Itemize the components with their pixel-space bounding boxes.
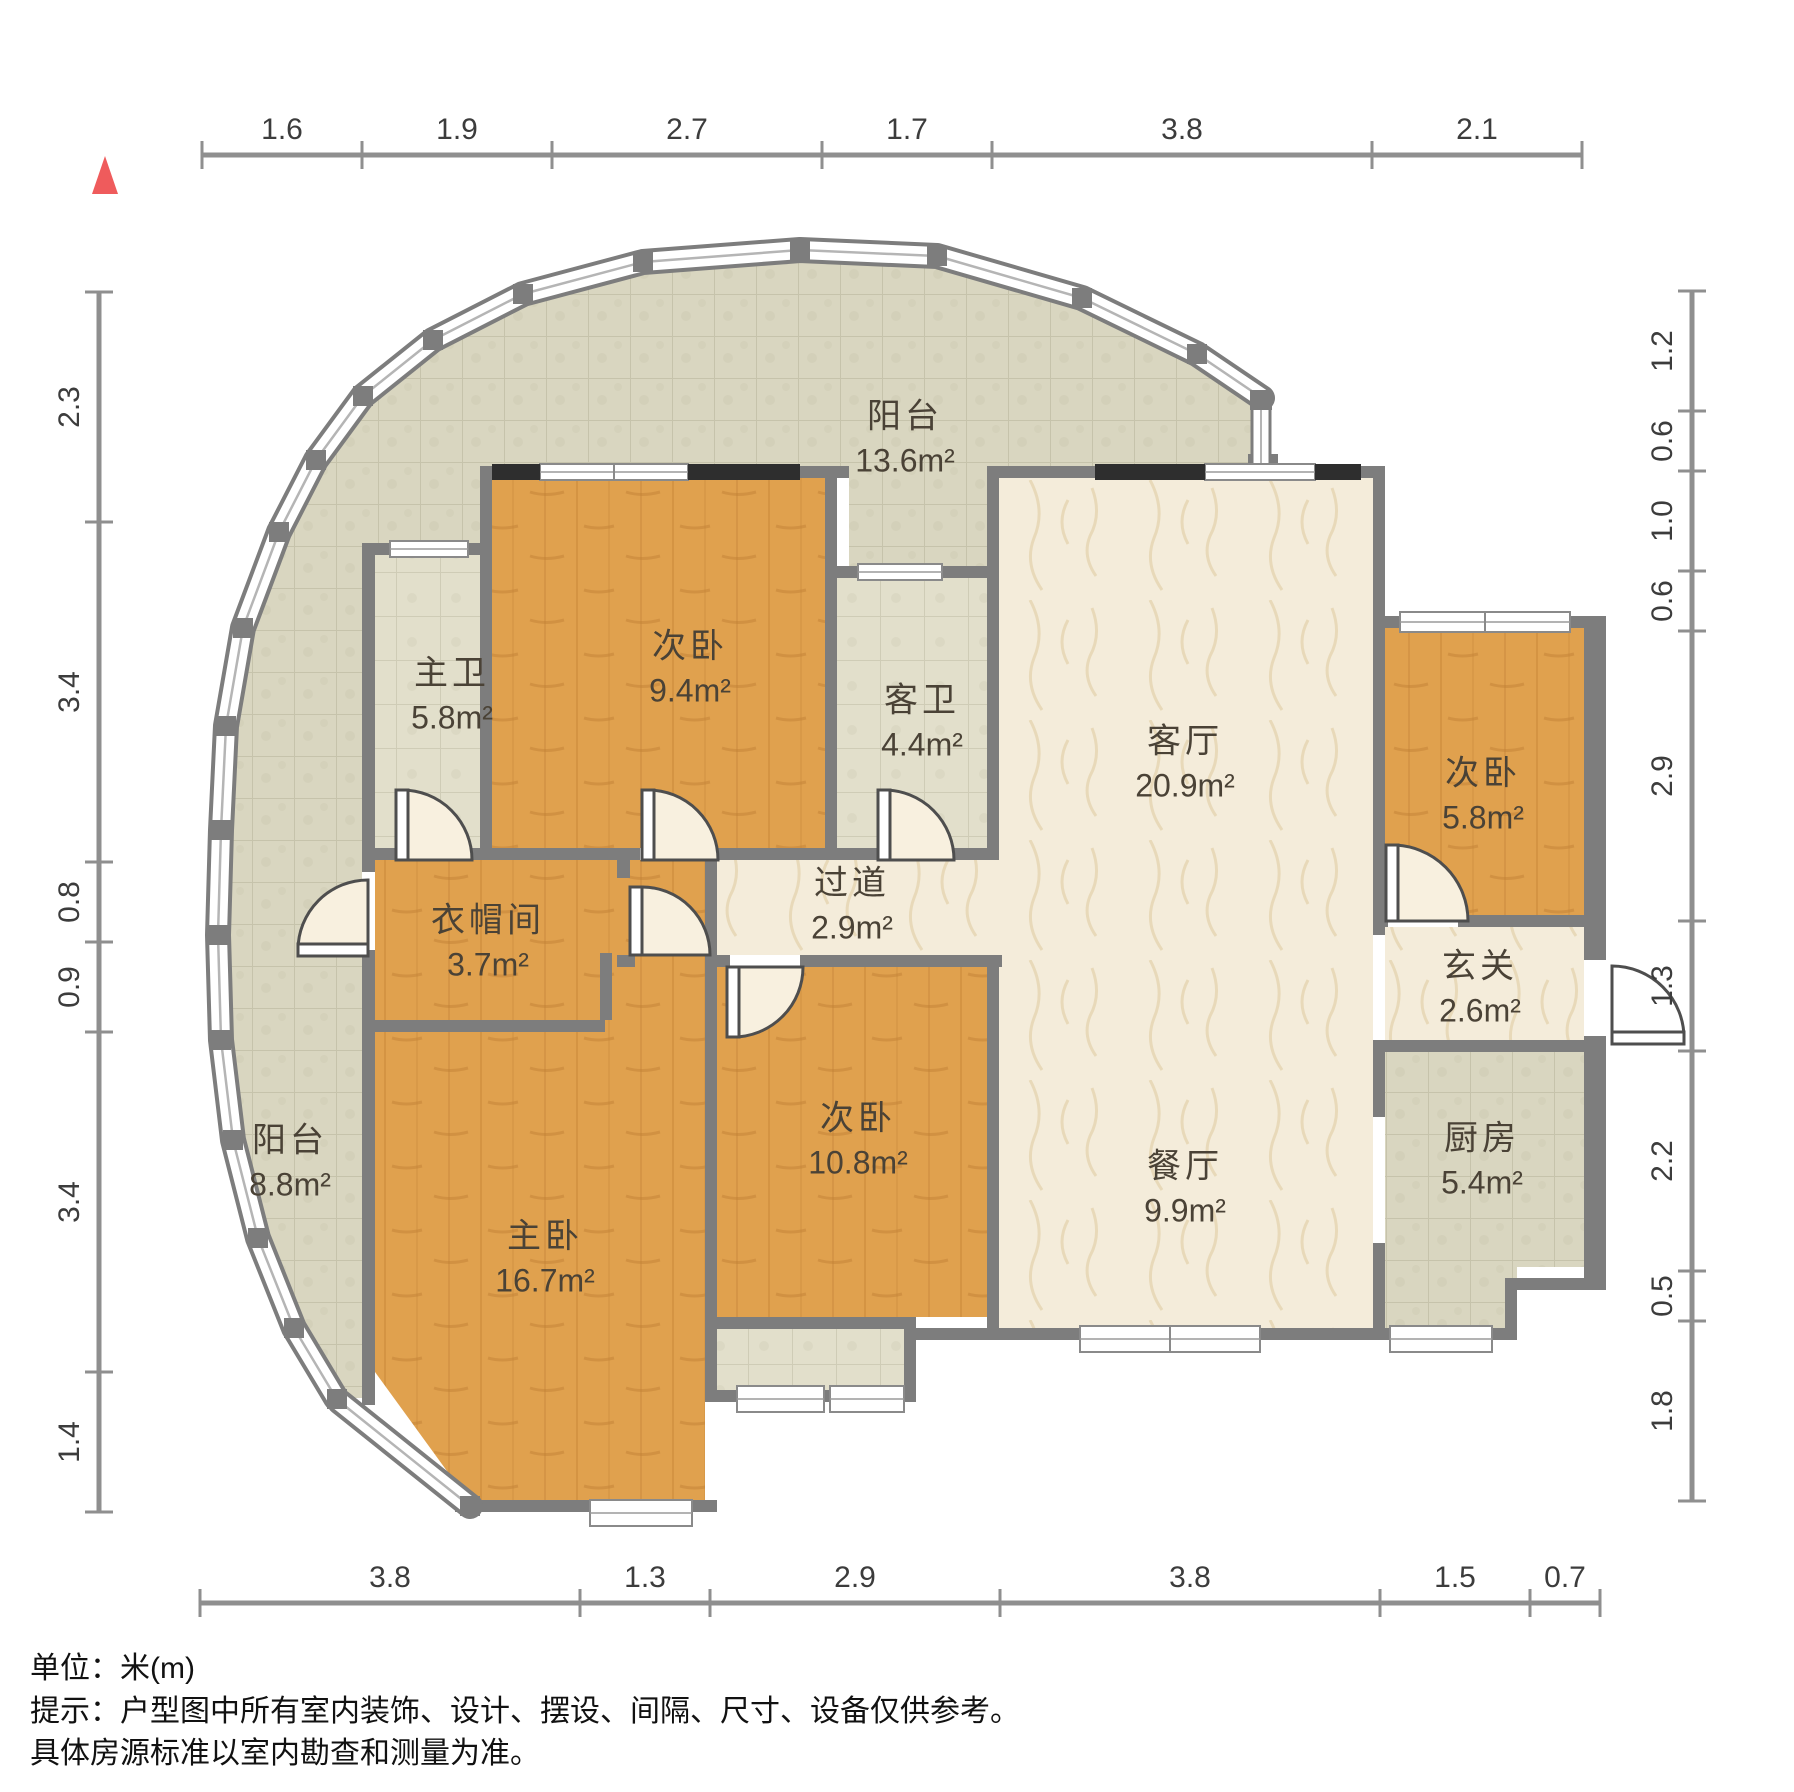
floorplan-page: 1.61.92.71.73.82.13.81.32.93.81.50.72.33… [0,0,1794,1792]
floor-living-dining [999,478,1373,1328]
footer-unit-note: 单位：米(m) [30,1648,1020,1691]
dim-label-right-0: 1.2 [1646,330,1679,372]
dim-label-top-4: 3.8 [1161,113,1203,146]
dim-label-bottom-4: 1.5 [1434,1561,1476,1594]
dim-label-bottom-2: 2.9 [834,1561,876,1594]
dim-label-top-0: 1.6 [261,113,303,146]
dim-label-left-4: 3.4 [53,1181,86,1223]
footer-disclaimer-1: 提示：户型图中所有室内装饰、设计、摆设、间隔、尺寸、设备仅供参考。 [30,1691,1020,1734]
dim-label-bottom-0: 3.8 [369,1561,411,1594]
dim-label-left-0: 2.3 [53,386,86,428]
dim-label-top-5: 2.1 [1456,113,1498,146]
dim-label-left-3: 0.9 [53,966,86,1008]
dim-label-left-5: 1.4 [53,1421,86,1463]
dim-label-left-2: 0.8 [53,881,86,923]
dim-label-right-4: 2.9 [1646,755,1679,797]
dim-label-right-6: 2.2 [1646,1140,1679,1182]
dim-label-right-8: 1.8 [1646,1390,1679,1432]
dim-label-right-7: 0.5 [1646,1275,1679,1317]
floor-bay [717,1329,904,1390]
dim-label-top-2: 2.7 [666,113,708,146]
dim-label-right-1: 0.6 [1646,420,1679,462]
floorplan-drawing: 1.61.92.71.73.82.13.81.32.93.81.50.72.33… [0,0,1794,1792]
dim-label-left-1: 3.4 [53,671,86,713]
north-arrow-icon [92,156,118,194]
floor-master-bed [375,1032,705,1500]
dim-label-bottom-1: 1.3 [624,1561,666,1594]
dim-label-top-3: 1.7 [886,113,928,146]
dim-label-bottom-3: 3.8 [1169,1561,1211,1594]
dim-label-right-2: 1.0 [1646,500,1679,542]
footer-disclaimer-2: 具体房源标准以室内勘查和测量为准。 [30,1733,1020,1776]
dim-label-right-5: 1.3 [1646,965,1679,1007]
footer-notes: 单位：米(m) 提示：户型图中所有室内装饰、设计、摆设、间隔、尺寸、设备仅供参考… [30,1648,1020,1776]
floor-foyer [1385,927,1584,1040]
dim-label-bottom-5: 0.7 [1544,1561,1586,1594]
dim-label-right-3: 0.6 [1646,580,1679,622]
dim-label-top-1: 1.9 [436,113,478,146]
